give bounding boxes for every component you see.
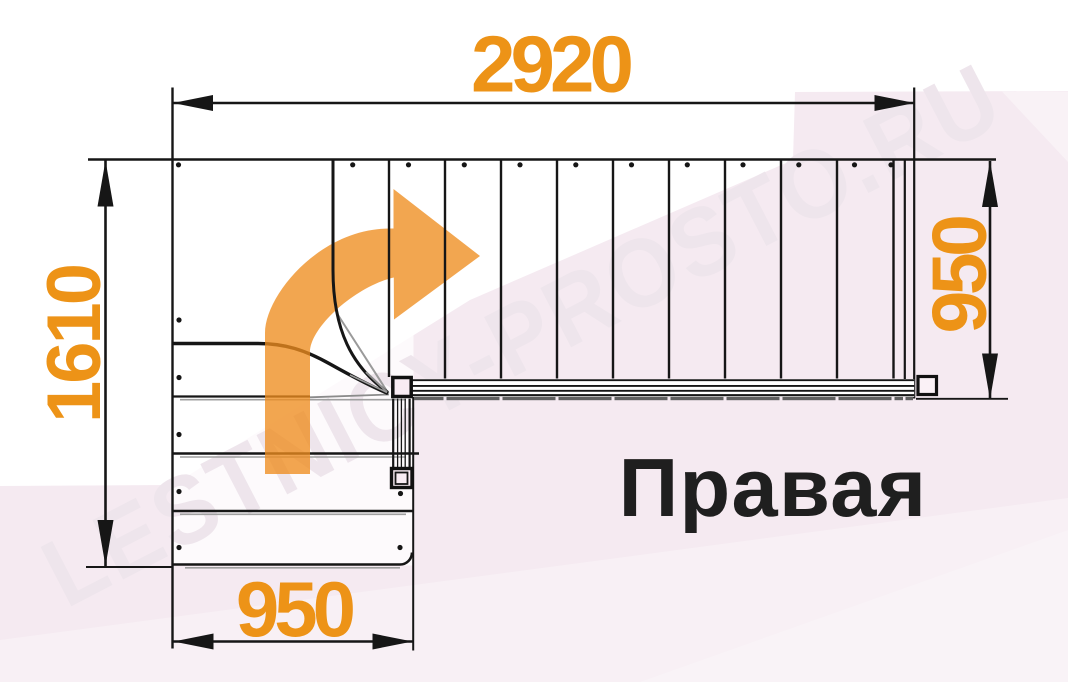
svg-text:Правая: Правая — [619, 441, 928, 534]
svg-text:2920: 2920 — [471, 20, 631, 109]
svg-text:1610: 1610 — [32, 265, 117, 423]
svg-text:950: 950 — [236, 565, 354, 653]
svg-text:950: 950 — [917, 217, 1003, 334]
